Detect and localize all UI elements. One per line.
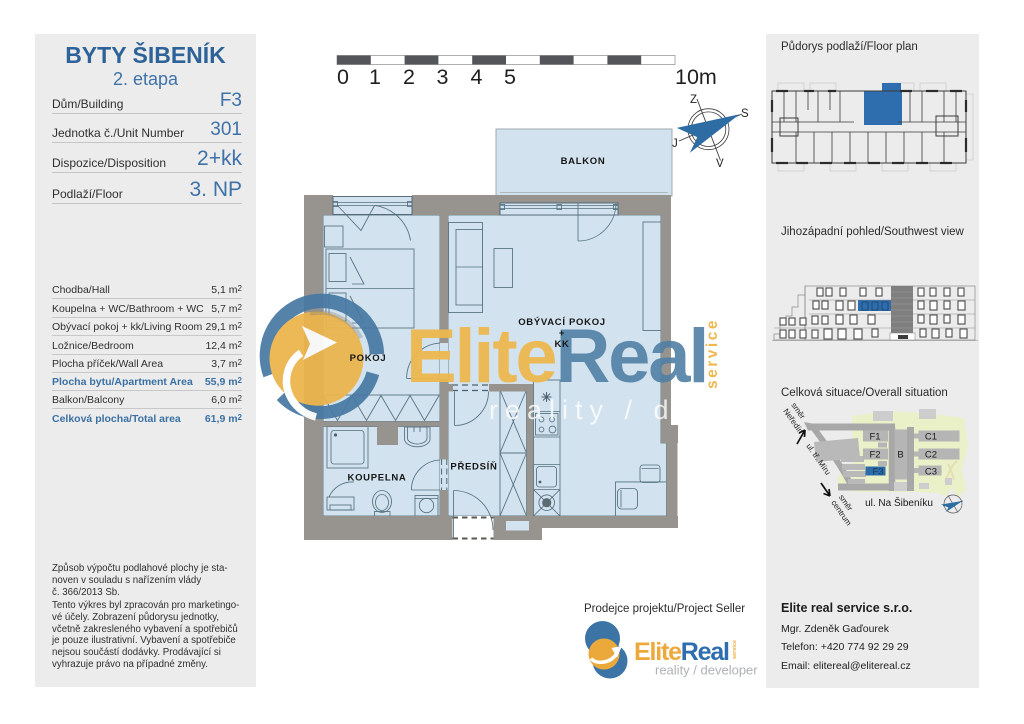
svg-text:C3: C3 — [925, 467, 937, 478]
svg-text:reality / developer: reality / developer — [655, 663, 758, 678]
svg-text:B: B — [897, 450, 903, 461]
svg-text:10m: 10m — [675, 65, 717, 89]
svg-text:4: 4 — [471, 65, 483, 89]
svg-text:J: J — [672, 138, 678, 150]
svg-text:OBÝVACÍ POKOJ: OBÝVACÍ POKOJ — [518, 316, 606, 328]
svg-text:KOUPELNA: KOUPELNA — [348, 473, 407, 484]
svg-text:PŘEDSÍŇ: PŘEDSÍŇ — [450, 461, 497, 473]
svg-text:3: 3 — [437, 65, 449, 89]
svg-text:F2: F2 — [869, 450, 880, 461]
svg-text:ul. Na Šibeníku: ul. Na Šibeníku — [865, 496, 933, 509]
svg-text:service: service — [704, 318, 721, 389]
svg-text:KK: KK — [554, 339, 569, 350]
svg-text:POKOJ: POKOJ — [350, 353, 387, 364]
svg-text:service: service — [732, 640, 738, 659]
svg-text:2: 2 — [403, 65, 415, 89]
svg-text:0: 0 — [337, 65, 349, 89]
svg-text:Z: Z — [690, 94, 697, 106]
svg-text:F3: F3 — [872, 467, 883, 478]
svg-text:C1: C1 — [925, 432, 937, 443]
svg-text:5: 5 — [504, 65, 516, 89]
svg-text:+: + — [559, 328, 565, 339]
svg-text:F1: F1 — [869, 432, 880, 443]
svg-text:S: S — [741, 108, 749, 120]
svg-text:C2: C2 — [925, 450, 937, 461]
svg-text:V: V — [716, 158, 724, 170]
svg-text:BALKON: BALKON — [561, 156, 606, 167]
svg-text:1: 1 — [369, 65, 381, 89]
